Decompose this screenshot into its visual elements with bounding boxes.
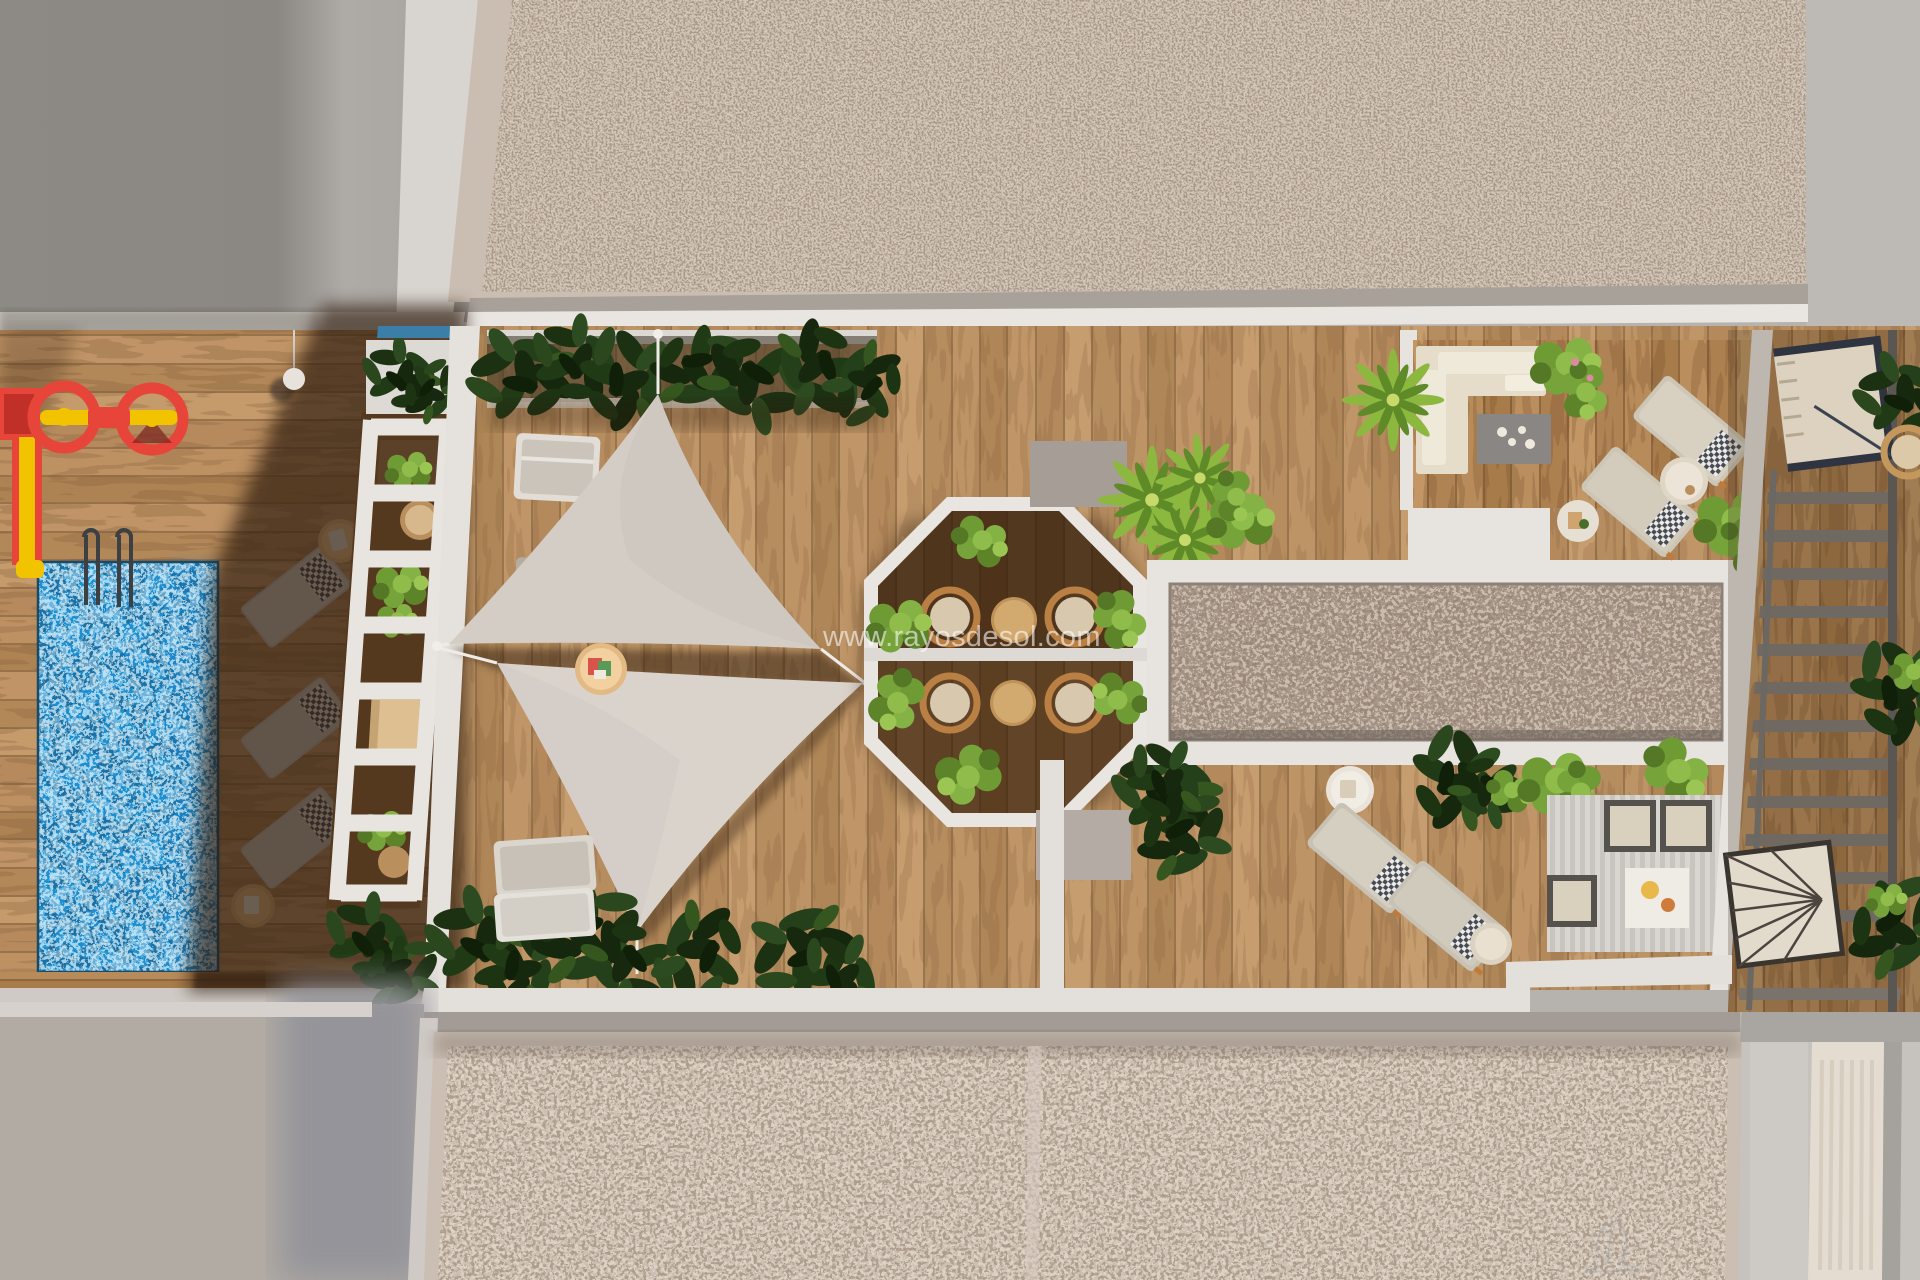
svg-text:www.rayosdesol.com: www.rayosdesol.com bbox=[822, 621, 1101, 653]
